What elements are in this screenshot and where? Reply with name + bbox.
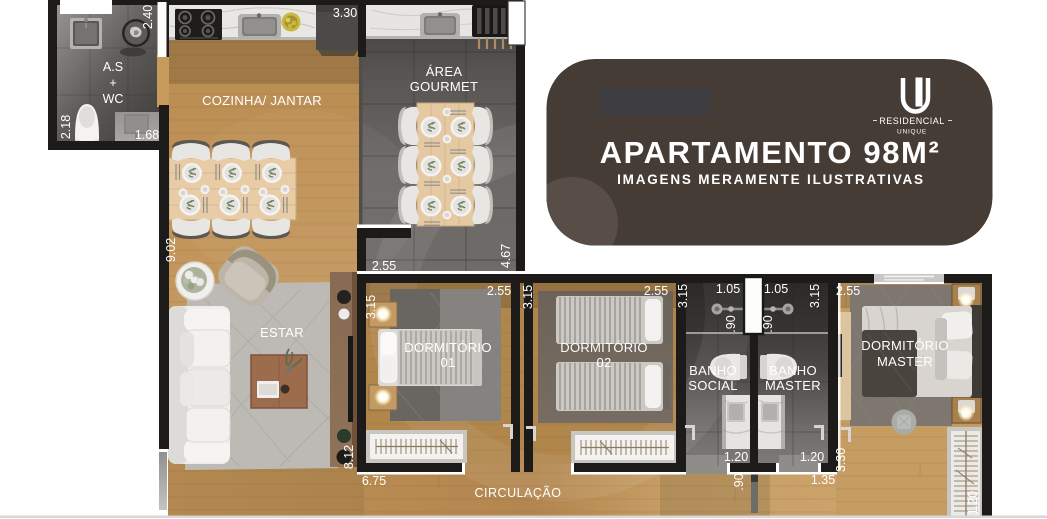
svg-text:DORMITÓRIO: DORMITÓRIO — [560, 340, 648, 355]
svg-text:1.05: 1.05 — [764, 282, 788, 296]
svg-text:2.40: 2.40 — [141, 5, 155, 29]
svg-text:9.02: 9.02 — [164, 238, 178, 262]
svg-text:3.30: 3.30 — [834, 448, 848, 472]
svg-text:APARTAMENTO 98M²: APARTAMENTO 98M² — [600, 135, 941, 170]
svg-text:+: + — [109, 76, 116, 90]
svg-text:GOURMET: GOURMET — [410, 79, 479, 94]
svg-text:BANHO: BANHO — [769, 363, 817, 378]
svg-text:02: 02 — [596, 355, 611, 370]
svg-text:4.67: 4.67 — [499, 244, 513, 268]
svg-text:A.S: A.S — [103, 60, 123, 74]
svg-text:MASTER: MASTER — [765, 378, 821, 393]
svg-text:2.55: 2.55 — [644, 284, 668, 298]
svg-text:3.15: 3.15 — [364, 295, 378, 319]
svg-text:SOCIAL: SOCIAL — [688, 378, 737, 393]
svg-text:6.75: 6.75 — [362, 474, 386, 488]
svg-text:RESIDENCIAL: RESIDENCIAL — [879, 116, 945, 126]
svg-text:3.15: 3.15 — [521, 285, 535, 309]
svg-text:3.30: 3.30 — [333, 6, 357, 20]
svg-text:DORMITÓRIO: DORMITÓRIO — [861, 338, 949, 353]
svg-text:.90: .90 — [732, 473, 746, 490]
svg-text:COZINHA/ JANTAR: COZINHA/ JANTAR — [202, 93, 322, 108]
svg-text:DORMITÓRIO: DORMITÓRIO — [404, 340, 492, 355]
svg-text:WC: WC — [103, 92, 124, 106]
svg-text:1.68: 1.68 — [135, 128, 159, 142]
svg-text:01: 01 — [440, 355, 455, 370]
svg-text:3.15: 3.15 — [808, 284, 822, 308]
svg-text:.90: .90 — [724, 315, 738, 332]
svg-text:BANHO: BANHO — [689, 363, 737, 378]
svg-text:1.05: 1.05 — [716, 282, 740, 296]
svg-text:MASTER: MASTER — [877, 354, 933, 369]
svg-text:IMAGENS MERAMENTE ILUSTRATIVAS: IMAGENS MERAMENTE ILUSTRATIVAS — [617, 172, 925, 187]
svg-text:.90: .90 — [761, 315, 775, 332]
svg-text:1.20: 1.20 — [966, 491, 980, 515]
svg-text:8.12: 8.12 — [342, 445, 356, 469]
svg-text:2.55: 2.55 — [836, 284, 860, 298]
svg-text:1.20: 1.20 — [724, 450, 748, 464]
svg-text:1.35: 1.35 — [811, 473, 835, 487]
svg-text:CIRCULAÇÃO: CIRCULAÇÃO — [475, 486, 562, 500]
svg-text:1.20: 1.20 — [800, 450, 824, 464]
svg-text:3.15: 3.15 — [676, 284, 690, 308]
svg-text:2.55: 2.55 — [487, 284, 511, 298]
svg-text:ÁREA: ÁREA — [426, 64, 463, 79]
svg-text:2.18: 2.18 — [59, 115, 73, 139]
svg-text:2.55: 2.55 — [372, 259, 396, 273]
svg-text:ESTAR: ESTAR — [260, 325, 304, 340]
